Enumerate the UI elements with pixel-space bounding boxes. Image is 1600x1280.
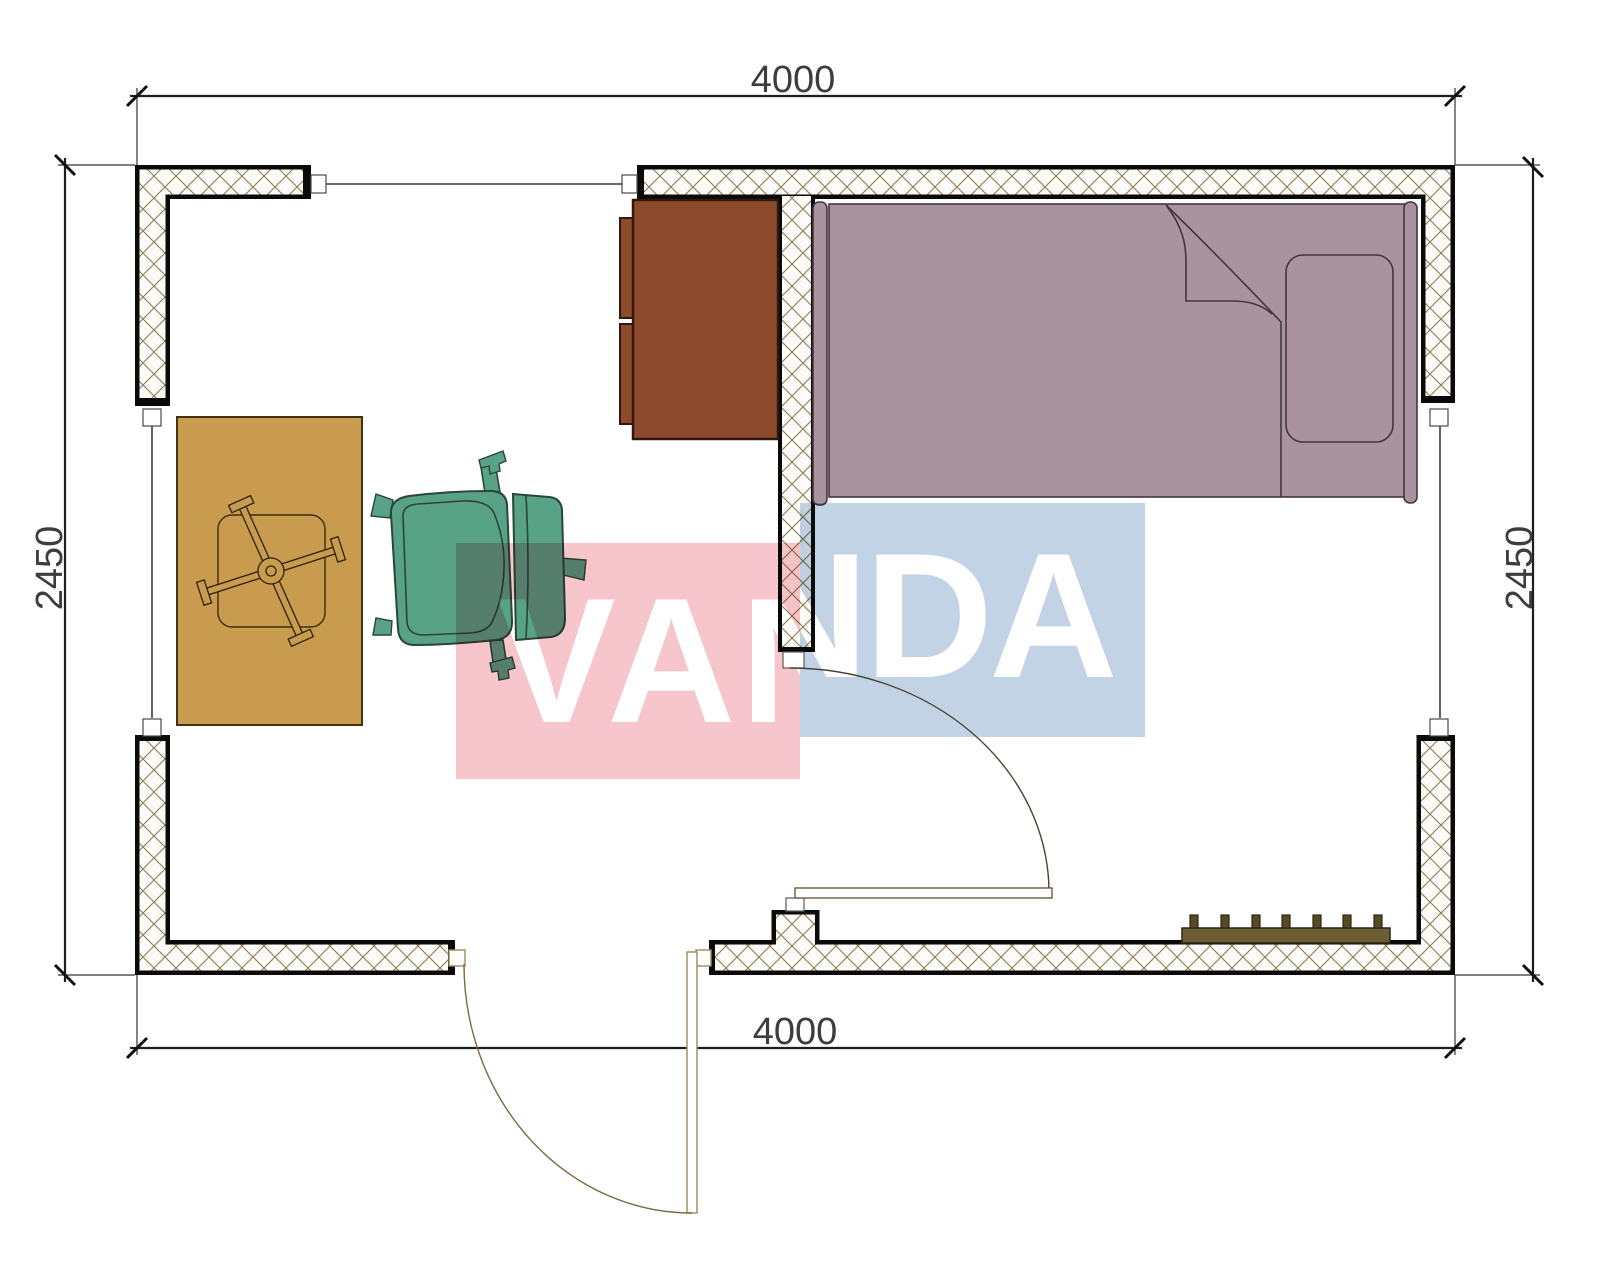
svg-text:2450: 2450	[29, 526, 71, 611]
svg-text:4000: 4000	[753, 1011, 838, 1053]
svg-text:4000: 4000	[751, 59, 836, 101]
svg-text:2450: 2450	[1499, 526, 1541, 611]
